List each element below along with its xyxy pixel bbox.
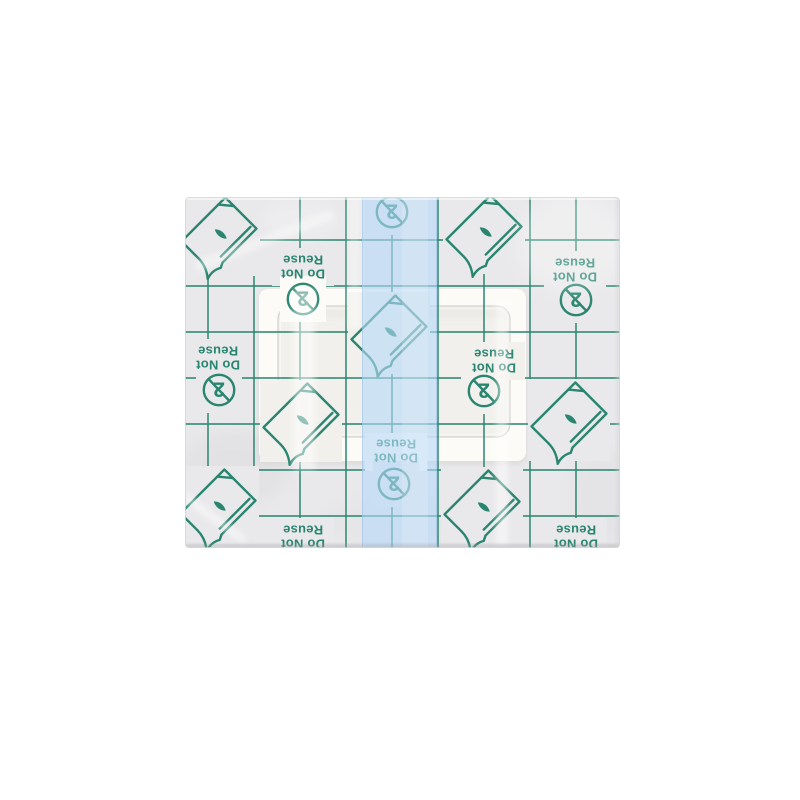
sheen-streak [293,289,315,469]
do-not-reuse-text [196,344,241,373]
sheen-glow [517,193,627,293]
sheen-glow [260,200,340,240]
sheen-streak [496,300,508,546]
sheen-streak [348,197,361,327]
do-not-reuse-text [472,347,517,376]
product-photo: Do Not Reuse 2 [0,0,800,800]
dressing-packet [175,192,638,553]
pull-tab-sheen [402,197,428,548]
photo-canvas: Do Not Reuse 2 [0,0,800,800]
do-not-reuse-text [281,253,326,282]
center-pull-tab [362,197,437,548]
